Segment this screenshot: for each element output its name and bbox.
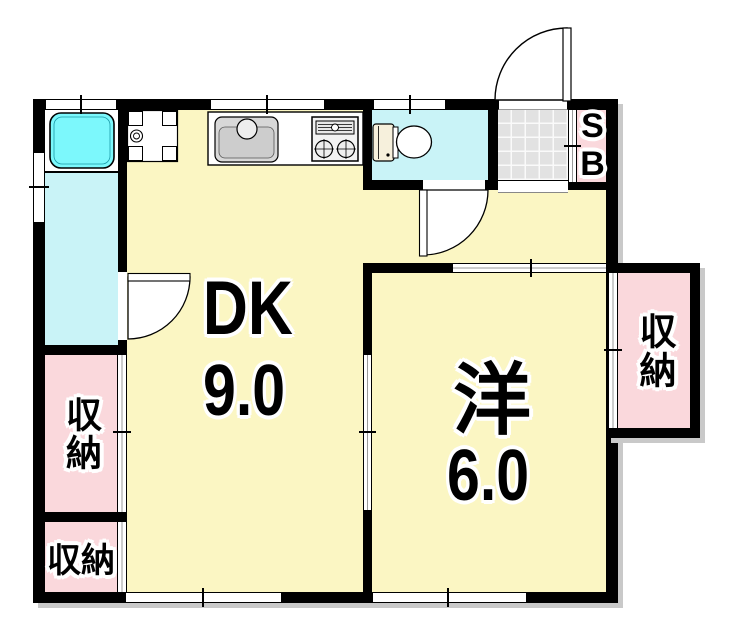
sliding-door-storage-left-lower bbox=[117, 522, 127, 592]
bathroom bbox=[45, 110, 118, 173]
entrance-threshold bbox=[498, 99, 568, 110]
storage-text: 収納 bbox=[47, 533, 115, 582]
center-tick bbox=[80, 95, 82, 114]
storage-text: 収納 bbox=[627, 312, 681, 390]
dk-size-label: 9.0 bbox=[172, 356, 317, 426]
center-tick bbox=[409, 95, 411, 114]
western-room-text: 洋 bbox=[453, 338, 531, 450]
entry-genkan bbox=[498, 110, 568, 180]
center-tick bbox=[447, 588, 449, 607]
shoe-box-text: SB bbox=[573, 107, 612, 183]
genkan-step bbox=[498, 180, 568, 193]
center-tick bbox=[202, 588, 204, 607]
center-tick bbox=[359, 431, 376, 433]
toilet-room bbox=[372, 110, 488, 180]
entrance-door-arc bbox=[495, 28, 571, 101]
western-size-text: 6.0 bbox=[447, 435, 529, 517]
dk-label: DK bbox=[175, 272, 320, 344]
dk-size-text: 9.0 bbox=[203, 350, 285, 432]
western-room-label: 洋 bbox=[427, 349, 557, 439]
dk-entry-strip bbox=[363, 190, 606, 263]
window-bottom-western bbox=[372, 592, 527, 603]
floor-plan: DK 9.0 洋 6.0 収納 収納 収納 SB bbox=[0, 0, 729, 633]
western-size-label: 6.0 bbox=[418, 441, 558, 511]
center-tick bbox=[530, 259, 532, 277]
center-tick bbox=[29, 186, 49, 188]
washroom-corridor bbox=[45, 173, 118, 345]
storage-left-lower-label: 収納 bbox=[45, 522, 117, 592]
storage-right-label: 収納 bbox=[618, 275, 690, 426]
storage-text: 収納 bbox=[55, 396, 107, 472]
sliding-door-storage-left-upper bbox=[117, 355, 127, 512]
storage-left-upper-label: 収納 bbox=[45, 357, 117, 510]
center-tick bbox=[266, 95, 268, 114]
dk-label-text: DK bbox=[202, 265, 292, 352]
shoe-box-label: SB bbox=[575, 109, 609, 181]
